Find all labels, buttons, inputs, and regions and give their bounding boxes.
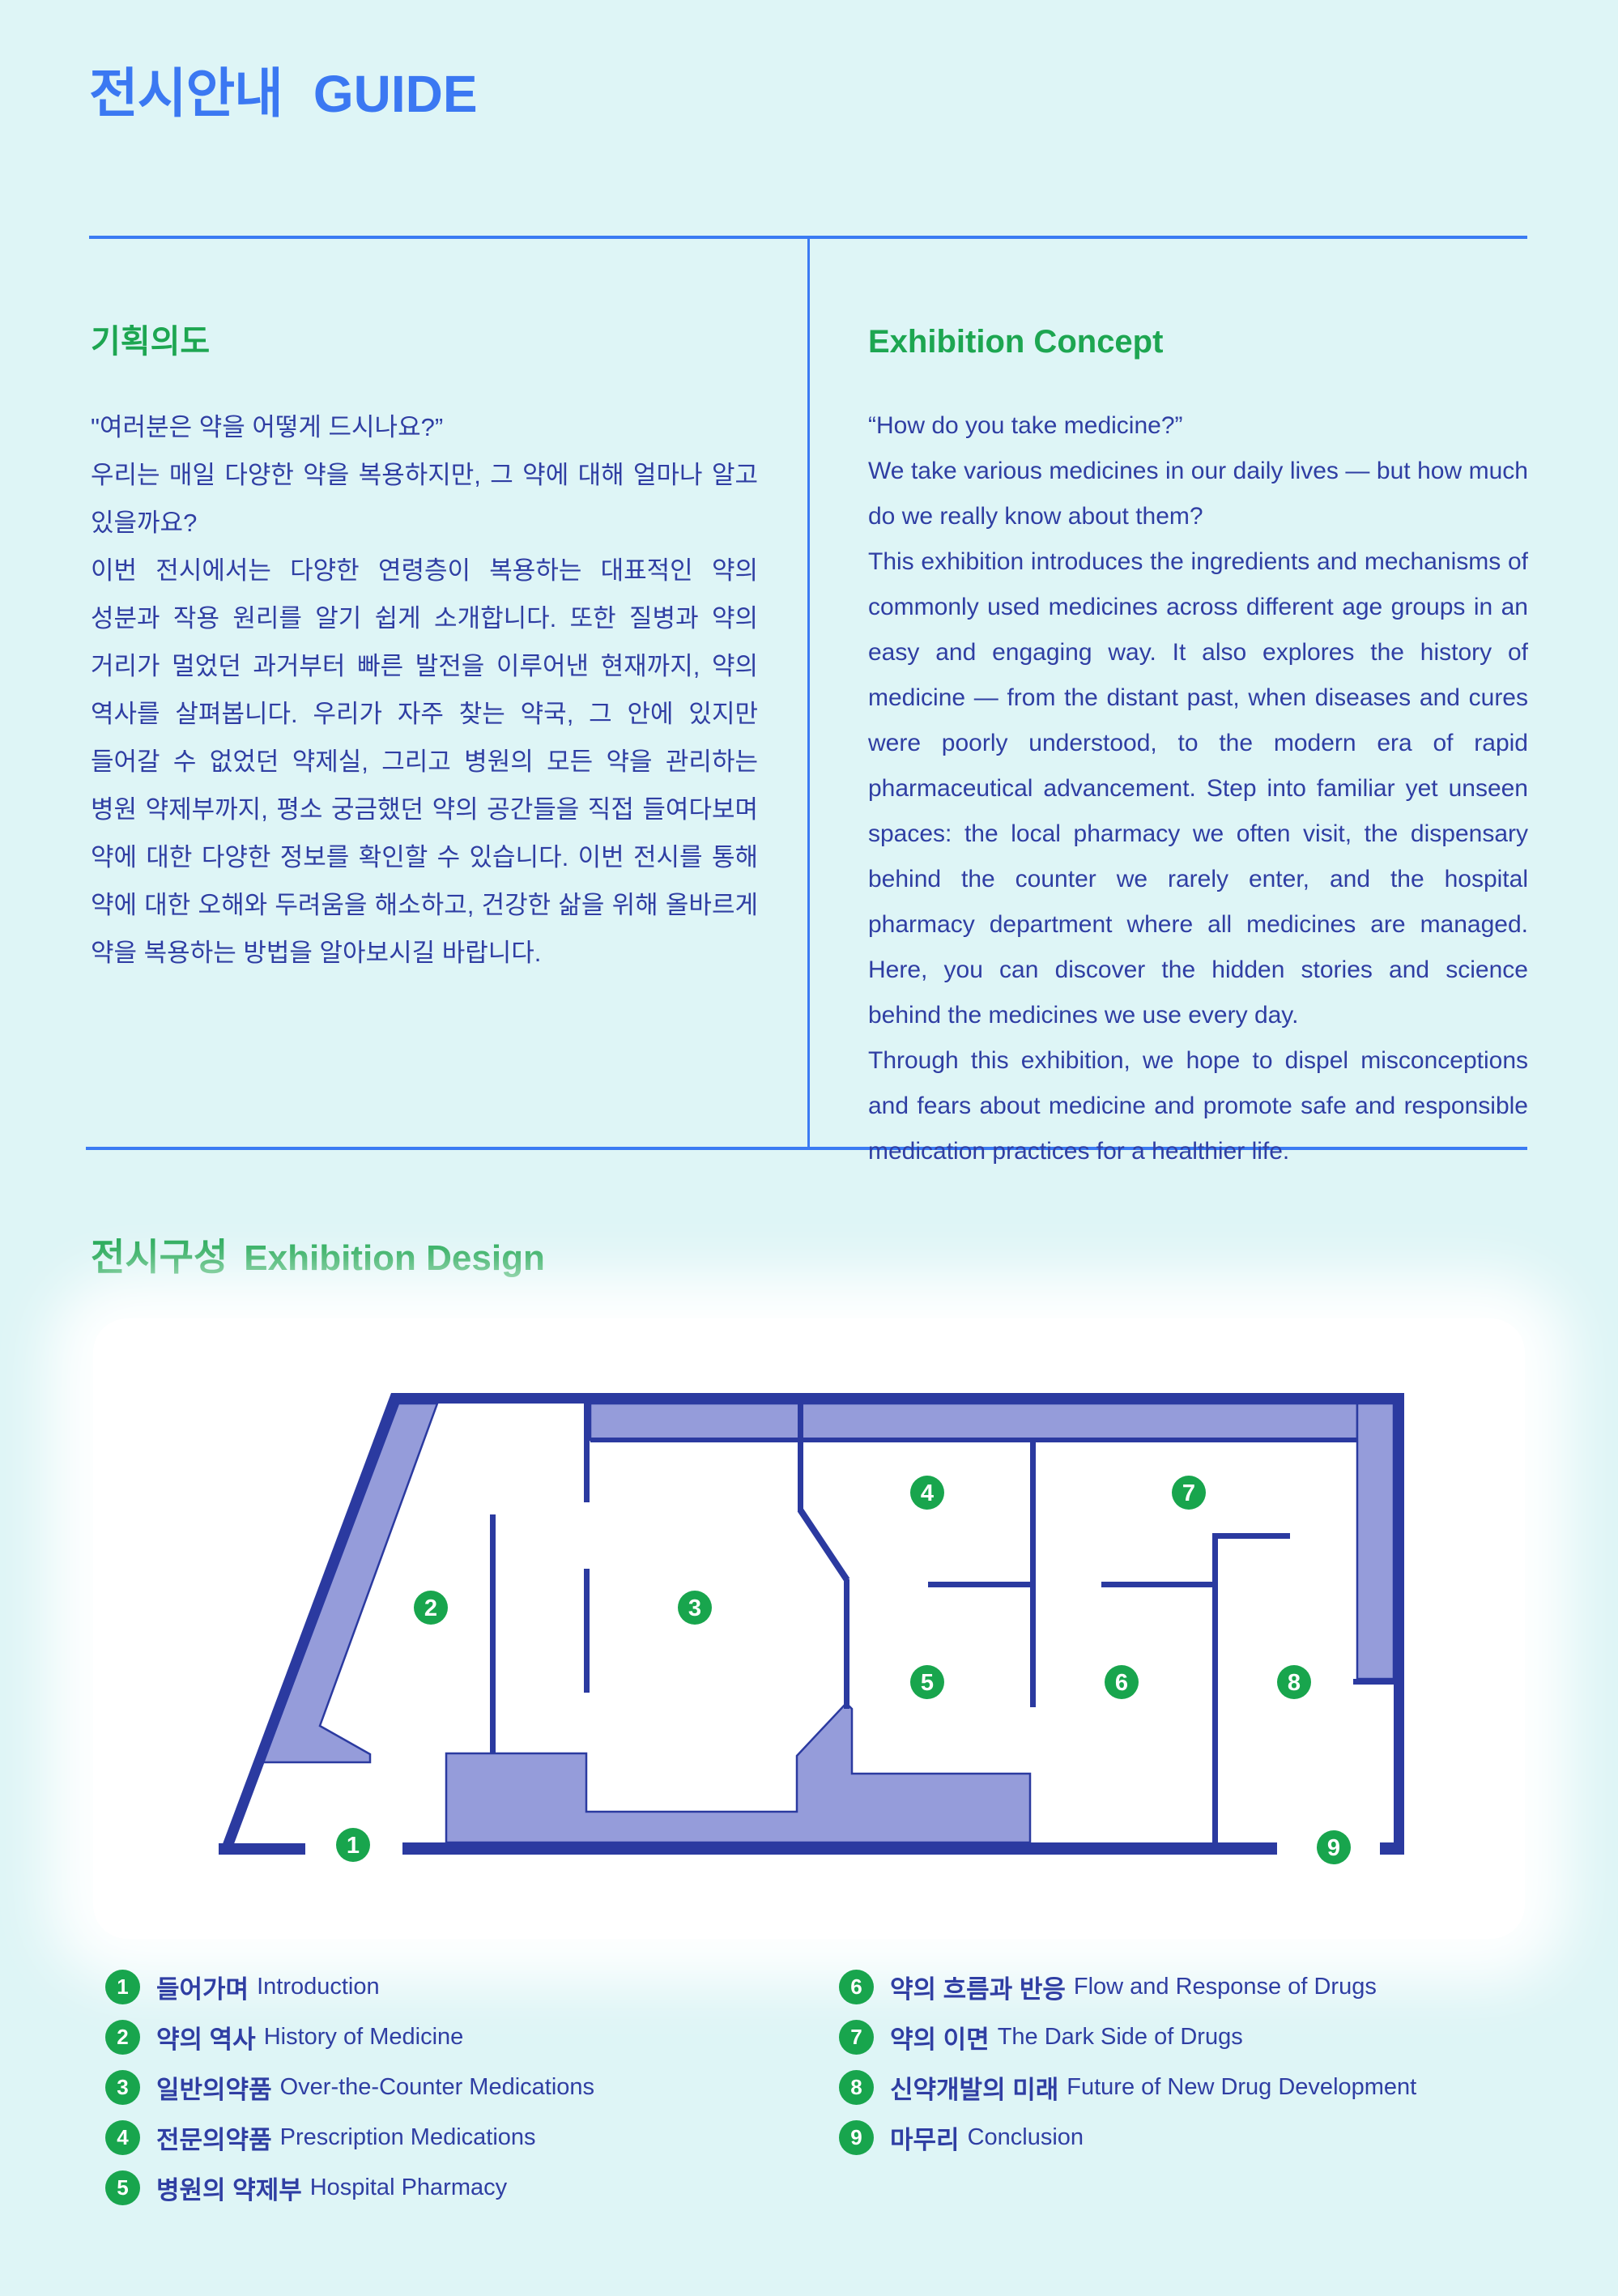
floor-plan-card: 1 2 3 4 5 [93,1318,1525,1939]
legend-item-8-badge: 8 [839,2070,874,2105]
design-section-heading: 전시구성Exhibition Design [91,1228,545,1281]
map-marker-2: 2 [414,1591,448,1625]
map-marker-1-number: 1 [347,1833,360,1859]
legend-item-2-english: History of Medicine [264,2024,464,2051]
column-divider [807,237,810,1147]
concept-text-english: “How do you take medicine?”We take vario… [868,403,1528,1174]
wall-room3-left-upper [584,1404,590,1502]
legend-item-3-badge: 3 [105,2070,140,2105]
legend-item-8-korean: 신약개발의 미래 [890,2069,1058,2106]
top-corridor-band [590,1404,1357,1440]
map-marker-4: 4 [910,1476,944,1510]
design-heading-english: Exhibition Design [244,1238,545,1278]
page-title-english: GUIDE [313,65,478,123]
map-marker-8-number: 8 [1288,1670,1301,1696]
wall-room3-right-slant [800,1510,847,1580]
map-marker-6-number: 6 [1115,1670,1128,1696]
design-heading-korean: 전시구성 [91,1236,228,1278]
map-marker-3-number: 3 [688,1595,701,1621]
wall-right-foot [1380,1842,1404,1855]
map-marker-9-number: 9 [1327,1835,1340,1861]
wall-room3-left-lower [584,1569,590,1693]
legend-item-2: 2 약의 역사 History of Medicine [105,2019,463,2055]
legend-item-2-badge: 2 [105,2020,140,2055]
concept-text-korean: "여러분은 약을 어떻게 드시나요?”우리는 매일 다양한 약을 복용하지만, … [91,403,758,977]
wall-bottom [402,1842,1277,1855]
legend-item-9-badge: 9 [839,2120,874,2155]
concept-ko-line-2: 우리는 매일 다양한 약을 복용하지만, 그 약에 대해 얼마나 알고 있을까요… [91,461,758,537]
concept-en-line-4: Through this exhibition, we hope to disp… [868,1047,1528,1165]
right-corridor-band [1357,1404,1394,1679]
legend-item-6-badge: 6 [839,1970,874,2004]
legend-item-6-english: Flow and Response of Drugs [1074,1974,1377,2000]
map-marker-9: 9 [1317,1830,1351,1864]
legend-item-2-korean: 약의 역사 [156,2019,256,2055]
legend-item-5: 5 병원의 약제부 Hospital Pharmacy [105,2170,507,2205]
legend-item-5-korean: 병원의 약제부 [156,2170,302,2206]
guide-page: 전시안내GUIDE 기획의도 "여러분은 약을 어떻게 드시나요?”우리는 매일… [0,0,1618,2296]
legend-item-8-english: Future of New Drug Development [1067,2074,1416,2101]
legend-item-8: 8 신약개발의 미래 Future of New Drug Developmen… [839,2069,1416,2105]
concept-en-line-3: This exhibition introduces the ingredien… [868,548,1528,1029]
concept-column-korean: 기획의도 "여러분은 약을 어떻게 드시나요?”우리는 매일 다양한 약을 복용… [91,322,758,977]
legend-item-5-english: Hospital Pharmacy [310,2175,507,2201]
map-marker-3: 3 [678,1591,712,1625]
legend-item-9-korean: 마무리 [890,2119,960,2156]
concept-ko-line-1: "여러분은 약을 어떻게 드시나요?” [91,413,443,441]
map-marker-1: 1 [336,1828,370,1862]
concept-en-line-1: “How do you take medicine?” [868,412,1183,439]
wall-room4-room7-divider [1030,1440,1036,1707]
legend-item-3: 3 일반의약품 Over-the-Counter Medications [105,2069,594,2105]
legend-item-4-korean: 전문의약품 [156,2119,272,2156]
legend-item-4-english: Prescription Medications [280,2124,536,2151]
legend-item-4-badge: 4 [105,2120,140,2155]
map-marker-6: 6 [1105,1665,1139,1699]
wall-room2-divider [490,1514,496,1753]
legend-item-6-korean: 약의 흐름과 반응 [890,1969,1066,2005]
slanted-entry-band [263,1404,437,1762]
legend-item-1: 1 들어가며 Introduction [105,1969,380,2004]
legend-item-1-english: Introduction [257,1974,380,2000]
map-marker-5: 5 [910,1665,944,1699]
wall-right [1394,1393,1404,1855]
legend-item-7-english: The Dark Side of Drugs [998,2024,1243,2051]
legend-item-7-badge: 7 [839,2020,874,2055]
wall-room6-room7-divider [1101,1582,1214,1587]
legend-item-3-english: Over-the-Counter Medications [280,2074,594,2101]
legend-item-4: 4 전문의약품 Prescription Medications [105,2119,536,2155]
map-marker-4-number: 4 [921,1480,934,1506]
concept-heading-korean: 기획의도 [91,322,758,361]
concept-heading-english: Exhibition Concept [868,322,1528,361]
wall-room3-right-upper [798,1404,803,1512]
legend-item-3-korean: 일반의약품 [156,2069,272,2106]
map-marker-7-number: 7 [1182,1480,1195,1506]
concept-en-line-2: We take various medicines in our daily l… [868,458,1528,530]
wall-slanted-left [219,1393,402,1855]
wall-room6-room8-divider [1212,1536,1218,1842]
map-marker-7: 7 [1172,1476,1206,1510]
map-marker-2-number: 2 [424,1595,437,1621]
floor-plan-svg: 1 2 3 4 5 [93,1318,1525,1939]
legend-item-6: 6 약의 흐름과 반응 Flow and Response of Drugs [839,1969,1377,2004]
legend-item-5-badge: 5 [105,2170,140,2205]
map-marker-5-number: 5 [921,1670,934,1696]
map-marker-8: 8 [1277,1665,1311,1699]
bottom-center-block [446,1703,1030,1842]
concept-column-english: Exhibition Concept “How do you take medi… [868,322,1528,1174]
legend-item-7-korean: 약의 이면 [890,2019,990,2055]
legend-item-1-korean: 들어가며 [156,1969,249,2005]
wall-right-corridor-cap [1353,1679,1404,1685]
wall-top-corridor-edge [590,1438,1357,1442]
wall-top [391,1393,1404,1404]
legend-item-1-badge: 1 [105,1970,140,2004]
legend-item-9-english: Conclusion [968,2124,1084,2151]
legend-item-7: 7 약의 이면 The Dark Side of Drugs [839,2019,1243,2055]
wall-room4-room5-divider [928,1582,1033,1587]
wall-room3-right-lower [844,1579,849,1709]
wall-room8-top [1212,1533,1290,1539]
legend-item-9: 9 마무리 Conclusion [839,2119,1084,2155]
page-title-korean: 전시안내 [89,63,283,123]
concept-ko-line-3: 이번 전시에서는 다양한 연령층이 복용하는 대표적인 약의 성분과 작용 원리… [91,556,758,871]
wall-bottom-left [219,1843,305,1855]
page-title: 전시안내GUIDE [89,50,478,128]
